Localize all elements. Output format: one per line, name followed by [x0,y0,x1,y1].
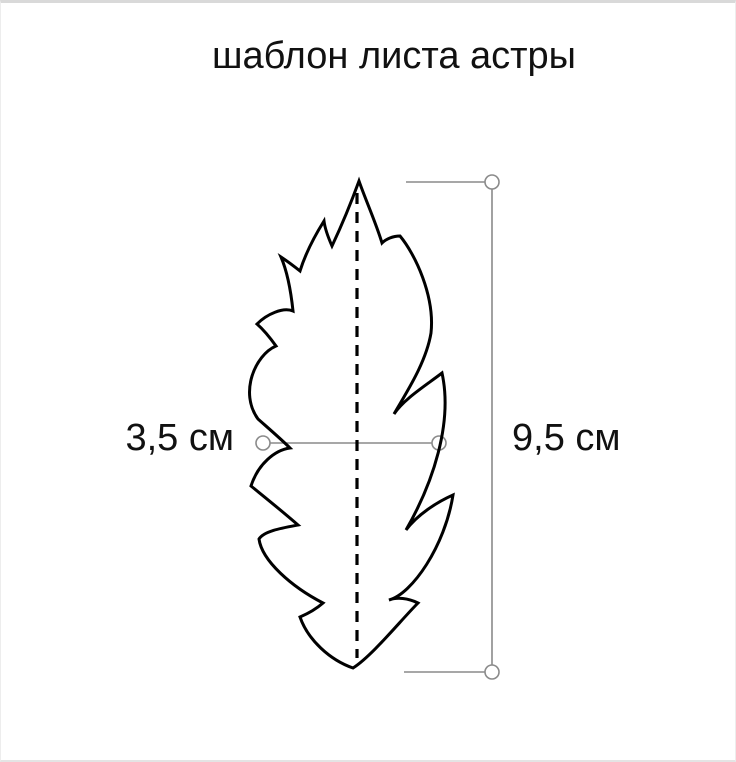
page-title: шаблон листа астры [51,36,736,78]
dimension-lines-group [256,175,499,679]
dimension-endpoint-circle [485,175,499,189]
leaf-diagram-svg [1,3,736,762]
leaf-outline [250,181,453,668]
height-dimension-line [404,182,492,672]
width-dimension-label: 3,5 см [1,419,234,457]
dimension-endpoint-circle [485,665,499,679]
height-dimension-label: 9,5 см [512,419,621,457]
diagram-canvas: шаблон листа астры 3,5 см 9,5 см [0,0,736,762]
dimension-endpoint-circle [256,436,270,450]
